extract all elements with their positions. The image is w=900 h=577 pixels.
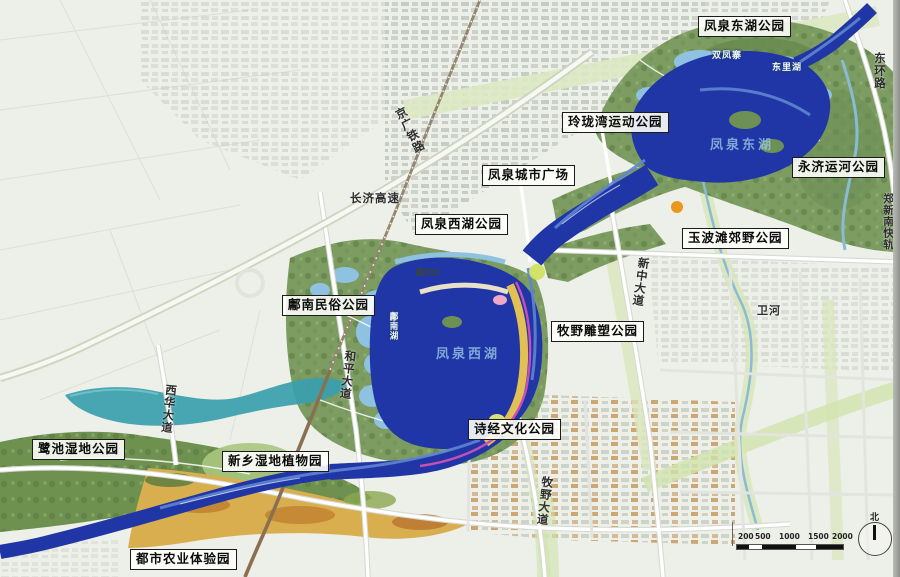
scale-segment xyxy=(762,545,796,549)
watermark-west-lake: 凤泉西湖 xyxy=(436,343,500,362)
park-label-luchi-wetland: 鹭池湿地公园 xyxy=(32,439,125,460)
park-label-fengquan-east-lake: 凤泉东湖公园 xyxy=(698,16,791,37)
scale-segment xyxy=(816,545,843,549)
scale-tick-1500: 1500 xyxy=(808,532,829,541)
feature-label-dongli-lake: 东里湖 xyxy=(772,60,802,73)
scale-tick-500: 500 xyxy=(755,532,771,541)
scale-tick-1000: 1000 xyxy=(779,532,800,541)
park-label-fengquan-west-lake: 凤泉西湖公园 xyxy=(415,214,508,235)
scale-bar: 200 500 1000 1500 2000 xyxy=(736,532,856,554)
park-label-shijing-culture: 诗经文化公园 xyxy=(468,419,561,440)
map-canvas xyxy=(0,0,900,577)
park-label-yongji-canal: 永济运河公园 xyxy=(792,157,885,178)
north-compass: 北 xyxy=(856,510,896,562)
scale-bar-stem xyxy=(732,522,733,546)
scale-tick-200: 200 xyxy=(738,532,754,541)
planning-map: 凤泉东湖公园 玲珑湾运动公园 凤泉城市广场 凤泉西湖公园 永济运河公园 玉波滩郊… xyxy=(0,0,900,577)
feature-label-yongfeng-terrace: 鄘风台 xyxy=(416,267,440,278)
scale-segment xyxy=(737,545,749,549)
feature-label-yongnan-lake: 鄘南湖 xyxy=(387,312,399,341)
park-label-xinxiang-wetland-botanic: 新乡湿地植物园 xyxy=(222,451,329,472)
watermark-east-lake: 凤泉东湖 xyxy=(710,134,774,153)
road-label-changji-expressway: 长济高速 xyxy=(350,190,400,206)
road-label-donghuan-road: 东环路 xyxy=(872,52,888,90)
park-label-yubotan-country: 玉波滩郊野公园 xyxy=(682,228,789,249)
park-label-fengquan-city-plaza: 凤泉城市广场 xyxy=(482,165,575,186)
compass-needle-icon xyxy=(873,525,876,540)
park-label-urban-agriculture: 都市农业体验园 xyxy=(130,549,237,570)
park-label-muye-sculpture: 牧野雕塑公园 xyxy=(551,321,644,342)
feature-label-shuangfengzhai: 双凤寨 xyxy=(712,48,742,61)
road-label-wei-river: 卫河 xyxy=(757,302,781,318)
scale-tick-2000: 2000 xyxy=(832,532,853,541)
map-right-edge xyxy=(893,0,900,577)
park-label-linglong-bay: 玲珑湾运动公园 xyxy=(562,112,669,133)
park-label-yongnan-folk: 鄘南民俗公园 xyxy=(282,295,375,316)
scale-bar-bar xyxy=(736,544,844,550)
